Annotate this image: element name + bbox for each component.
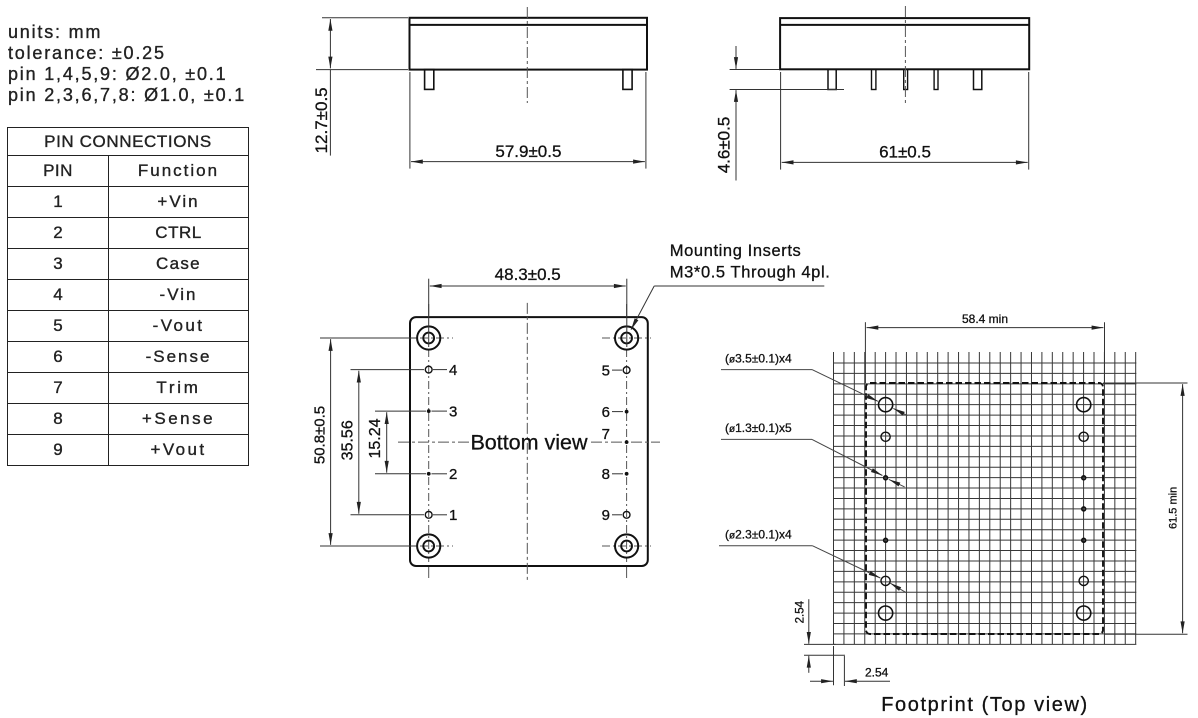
svg-text:61±0.5: 61±0.5 — [879, 142, 931, 161]
svg-text:M3*0.5 Through 4pl.: M3*0.5 Through 4pl. — [670, 264, 831, 282]
svg-text:8: 8 — [602, 466, 610, 483]
svg-text:9: 9 — [602, 507, 610, 524]
svg-text:35.56: 35.56 — [340, 420, 357, 460]
svg-text:5: 5 — [602, 363, 610, 380]
svg-text:61.5 min: 61.5 min — [1168, 487, 1180, 529]
svg-text:2.54: 2.54 — [795, 600, 807, 623]
svg-text:Footprint (Top view): Footprint (Top view) — [881, 694, 1089, 716]
svg-text:2.54: 2.54 — [865, 666, 889, 680]
svg-text:15.24: 15.24 — [367, 418, 384, 458]
svg-text:Bottom view: Bottom view — [470, 431, 588, 455]
svg-text:12.7±0.5: 12.7±0.5 — [312, 87, 331, 153]
svg-text:6: 6 — [602, 404, 610, 421]
svg-text:48.3±0.5: 48.3±0.5 — [495, 265, 561, 284]
svg-text:50.8±0.5: 50.8±0.5 — [312, 406, 329, 464]
svg-text:2: 2 — [449, 466, 457, 483]
svg-text:57.9±0.5: 57.9±0.5 — [495, 142, 561, 161]
svg-text:4.6±0.5: 4.6±0.5 — [715, 117, 734, 174]
svg-text:4: 4 — [449, 362, 457, 379]
svg-text:Mounting Inserts: Mounting Inserts — [670, 242, 802, 260]
svg-text:3: 3 — [449, 404, 457, 421]
svg-text:1: 1 — [449, 507, 457, 524]
svg-text:(ø3.5±0.1)x4: (ø3.5±0.1)x4 — [725, 352, 792, 366]
svg-text:7: 7 — [602, 426, 610, 443]
svg-text:(ø2.3±0.1)x4: (ø2.3±0.1)x4 — [725, 528, 792, 542]
svg-text:(ø1.3±0.1)x5: (ø1.3±0.1)x5 — [725, 421, 792, 435]
svg-text:58.4 min: 58.4 min — [962, 312, 1008, 326]
